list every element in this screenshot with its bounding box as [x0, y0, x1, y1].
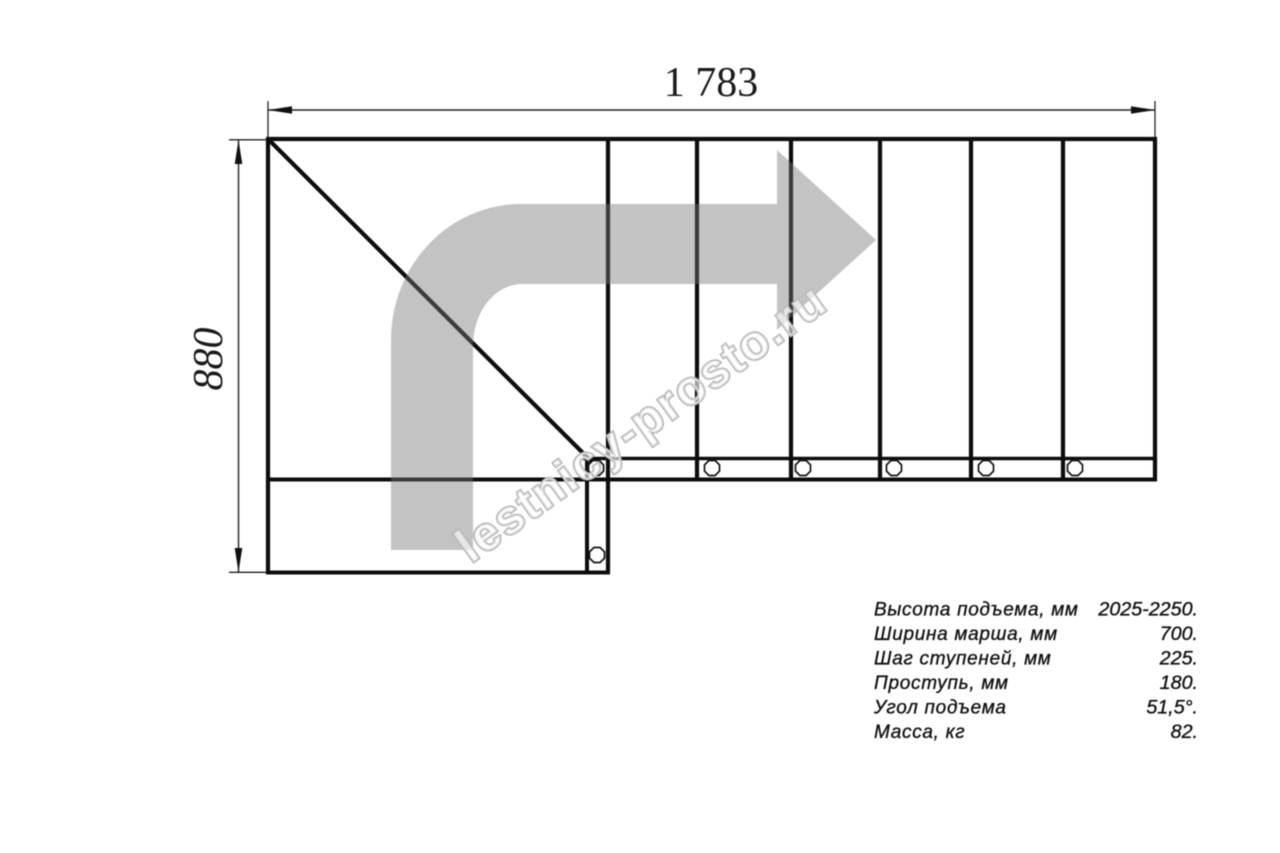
svg-text:880: 880	[186, 328, 232, 391]
svg-text:Высота подъема, мм: Высота подъема, мм	[874, 600, 1079, 621]
svg-text:Шаг ступеней, мм: Шаг ступеней, мм	[874, 649, 1052, 670]
svg-text:lestnicy-prosto.ru: lestnicy-prosto.ru	[447, 273, 837, 572]
svg-text:700.: 700.	[1160, 623, 1198, 645]
svg-text:Угол подъема: Угол подъема	[873, 698, 1007, 719]
svg-text:82.: 82.	[1171, 721, 1198, 743]
svg-text:1 783: 1 783	[664, 60, 759, 106]
svg-text:Ширина марша, мм: Ширина марша, мм	[874, 624, 1058, 645]
svg-text:Проступь, мм: Проступь, мм	[874, 673, 1009, 694]
svg-text:180.: 180.	[1160, 672, 1198, 694]
svg-text:2025-2250.: 2025-2250.	[1097, 599, 1198, 621]
svg-text:51,5°.: 51,5°.	[1146, 697, 1198, 719]
svg-text:Масса, кг: Масса, кг	[874, 722, 965, 743]
svg-text:225.: 225.	[1159, 648, 1198, 670]
